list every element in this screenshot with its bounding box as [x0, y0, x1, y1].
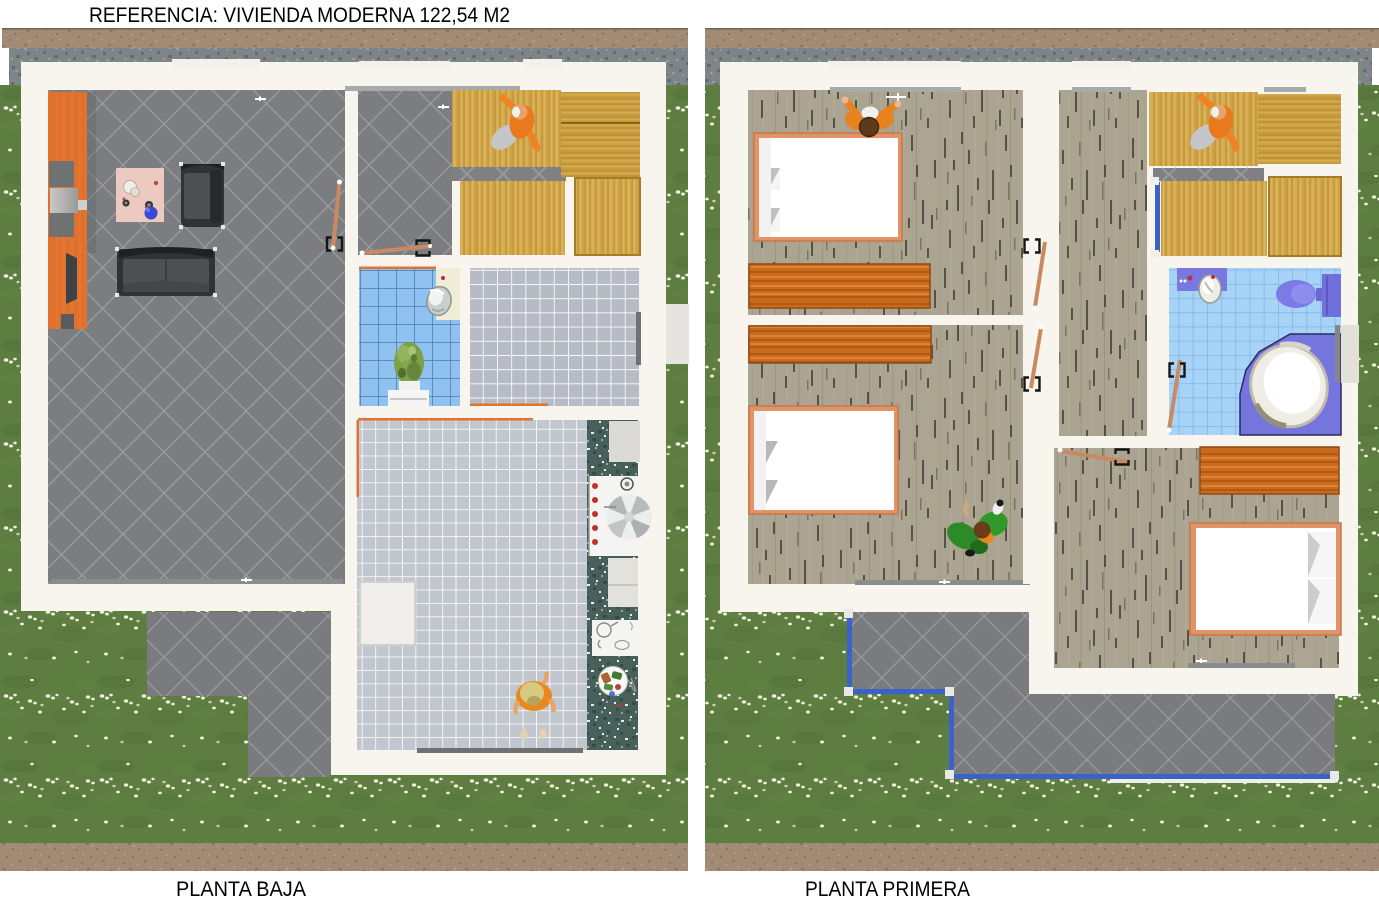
- svg-text:REFERENCIA: VIVIENDA MODERNA 1: REFERENCIA: VIVIENDA MODERNA 122,54 M2: [89, 4, 510, 27]
- svg-text:PLANTA PRIMERA: PLANTA PRIMERA: [805, 878, 970, 901]
- svg-text:PLANTA BAJA: PLANTA BAJA: [176, 878, 306, 901]
